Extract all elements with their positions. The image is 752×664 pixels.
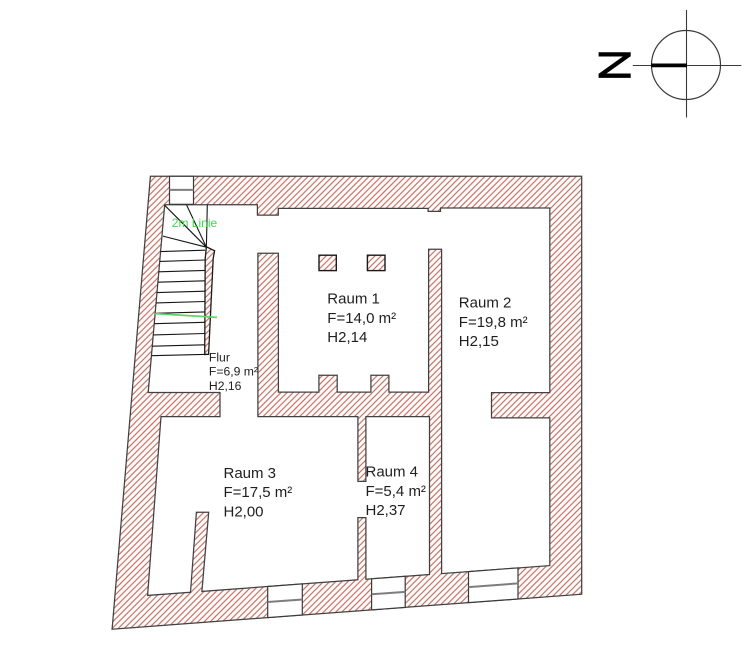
svg-text:H2,16: H2,16 — [209, 379, 242, 393]
svg-text:Raum 3: Raum 3 — [224, 465, 277, 482]
svg-text:F=17,5 m²: F=17,5 m² — [224, 484, 293, 501]
svg-text:2m Linie: 2m Linie — [172, 216, 218, 230]
svg-text:H2,14: H2,14 — [327, 329, 367, 346]
svg-text:H2,15: H2,15 — [459, 333, 499, 350]
svg-text:H2,00: H2,00 — [224, 503, 264, 520]
svg-text:Raum 4: Raum 4 — [366, 464, 419, 481]
svg-text:H2,37: H2,37 — [366, 502, 406, 519]
svg-text:Raum 1: Raum 1 — [327, 291, 380, 308]
svg-text:F=19,8 m²: F=19,8 m² — [459, 314, 528, 331]
svg-text:Raum 2: Raum 2 — [459, 295, 512, 312]
svg-text:Flur: Flur — [209, 350, 230, 364]
svg-text:F=6,9 m²: F=6,9 m² — [209, 365, 258, 379]
svg-text:F=14,0 m²: F=14,0 m² — [327, 310, 396, 327]
svg-text:F=5,4 m²: F=5,4 m² — [366, 483, 426, 500]
